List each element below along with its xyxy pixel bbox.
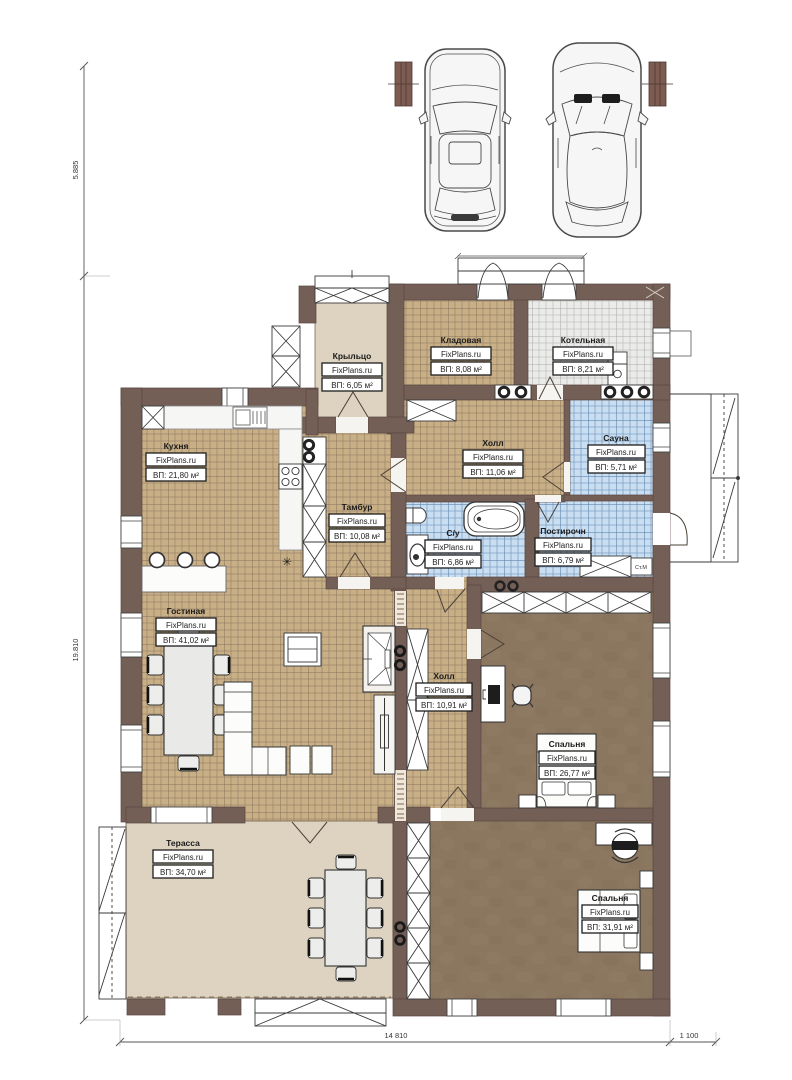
svg-text:ВП: 31,91 м²: ВП: 31,91 м² bbox=[587, 923, 633, 932]
svg-text:Гостиная: Гостиная bbox=[167, 606, 205, 616]
svg-text:ВП: 10,91 м²: ВП: 10,91 м² bbox=[421, 701, 467, 710]
svg-text:С/у: С/у bbox=[446, 528, 460, 538]
svg-text:Спальня: Спальня bbox=[592, 893, 629, 903]
svg-text:FixPlans.ru: FixPlans.ru bbox=[441, 350, 481, 359]
svg-text:ВП: 34,70 м²: ВП: 34,70 м² bbox=[160, 868, 206, 877]
svg-text:14 810: 14 810 bbox=[385, 1031, 408, 1040]
svg-text:1 100: 1 100 bbox=[680, 1031, 699, 1040]
svg-text:FixPlans.ru: FixPlans.ru bbox=[596, 448, 636, 457]
svg-text:ВП: 6,05 м²: ВП: 6,05 м² bbox=[331, 381, 373, 390]
svg-text:Сауна: Сауна bbox=[603, 433, 629, 443]
svg-text:ВП: 6,79 м²: ВП: 6,79 м² bbox=[542, 556, 584, 565]
svg-text:FixPlans.ru: FixPlans.ru bbox=[590, 908, 630, 917]
svg-text:Постирочн: Постирочн bbox=[540, 526, 586, 536]
svg-text:Кухня: Кухня bbox=[164, 441, 189, 451]
svg-text:Спальня: Спальня bbox=[549, 739, 586, 749]
svg-text:Крыльцо: Крыльцо bbox=[333, 351, 372, 361]
svg-text:Котельная: Котельная bbox=[561, 335, 606, 345]
svg-text:ВП: 6,86 м²: ВП: 6,86 м² bbox=[432, 558, 474, 567]
svg-text:ВП: 10,08 м²: ВП: 10,08 м² bbox=[334, 532, 380, 541]
svg-text:ВП: 8,21 м²: ВП: 8,21 м² bbox=[562, 365, 604, 374]
svg-text:ВП: 8,08 м²: ВП: 8,08 м² bbox=[440, 365, 482, 374]
svg-text:FixPlans.ru: FixPlans.ru bbox=[163, 853, 203, 862]
svg-text:ВП: 5,71 м²: ВП: 5,71 м² bbox=[595, 463, 637, 472]
svg-text:ВП: 11,06 м²: ВП: 11,06 м² bbox=[470, 468, 516, 477]
svg-text:ВП: 26,77 м²: ВП: 26,77 м² bbox=[544, 769, 590, 778]
svg-text:FixPlans.ru: FixPlans.ru bbox=[424, 686, 464, 695]
svg-text:FixPlans.ru: FixPlans.ru bbox=[156, 456, 196, 465]
svg-text:FixPlans.ru: FixPlans.ru bbox=[332, 366, 372, 375]
svg-text:FixPlans.ru: FixPlans.ru bbox=[547, 754, 587, 763]
svg-text:ВП: 41,02 м²: ВП: 41,02 м² bbox=[163, 636, 209, 645]
svg-text:Кладовая: Кладовая bbox=[441, 335, 482, 345]
svg-text:FixPlans.ru: FixPlans.ru bbox=[563, 350, 603, 359]
svg-text:FixPlans.ru: FixPlans.ru bbox=[337, 517, 377, 526]
svg-text:19.810: 19.810 bbox=[71, 639, 80, 662]
svg-text:FixPlans.ru: FixPlans.ru bbox=[433, 543, 473, 552]
svg-text:FixPlans.ru: FixPlans.ru bbox=[543, 541, 583, 550]
svg-text:Холл: Холл bbox=[482, 438, 503, 448]
svg-text:Терасса: Терасса bbox=[166, 838, 200, 848]
svg-text:ВП: 21,80 м²: ВП: 21,80 м² bbox=[153, 471, 199, 480]
svg-text:FixPlans.ru: FixPlans.ru bbox=[473, 453, 513, 462]
svg-text:5.885: 5.885 bbox=[71, 161, 80, 180]
svg-text:Холл: Холл bbox=[433, 671, 454, 681]
svg-text:Тамбур: Тамбур bbox=[342, 502, 373, 512]
svg-text:FixPlans.ru: FixPlans.ru bbox=[166, 621, 206, 630]
svg-text:Ст.М: Ст.М bbox=[635, 565, 647, 571]
svg-text:✳: ✳ bbox=[282, 555, 292, 569]
